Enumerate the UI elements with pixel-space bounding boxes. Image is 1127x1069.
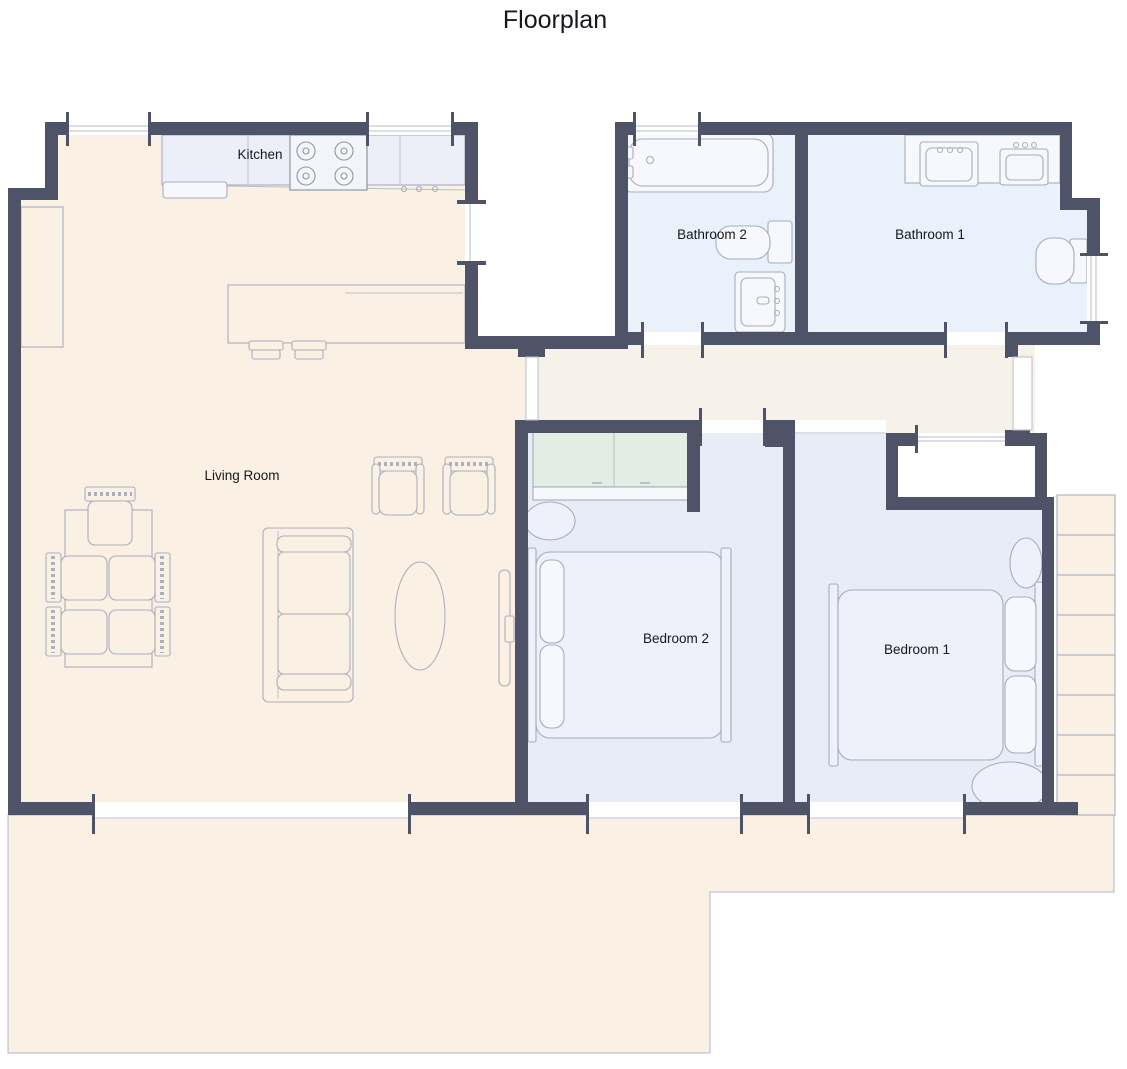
- wall-hall-door-jamb: [518, 349, 545, 357]
- bedroom2-label: Bedroom 2: [643, 631, 709, 646]
- dining-chair: [46, 607, 107, 656]
- bathroom1-label: Bathroom 1: [895, 227, 965, 242]
- pillow: [540, 645, 564, 728]
- armchair: [372, 457, 424, 515]
- door-leaf: [1013, 357, 1032, 430]
- wall-bed2-left: [515, 420, 528, 815]
- stairs: [1057, 495, 1115, 815]
- dining-chair: [109, 607, 170, 656]
- stair-step: [1057, 495, 1115, 535]
- hallway-floor: [526, 345, 1035, 433]
- sink: [1000, 143, 1048, 186]
- armchair: [443, 457, 495, 515]
- dishwasher: [163, 182, 227, 198]
- sink: [920, 142, 978, 186]
- toilet: [1036, 238, 1087, 284]
- kitchen-label: Kitchen: [237, 147, 282, 162]
- wall-bath1-upper-right: [1060, 122, 1072, 210]
- dining-chair: [85, 487, 135, 545]
- bedroom1-closet-notch: [898, 446, 1035, 497]
- wall-strip-jamb-bottom: [1005, 430, 1030, 443]
- wall-closet-right: [687, 420, 700, 512]
- floorplan-page: Floorplan Kitchen Bathroom 2 Bathroom 1 …: [0, 0, 1127, 1069]
- bathroom2-label: Bathroom 2: [677, 227, 747, 242]
- ottoman: [1010, 538, 1042, 588]
- patio-floor: [8, 815, 1114, 1053]
- wall-left: [8, 188, 21, 815]
- wall-bed1-right: [1042, 497, 1054, 815]
- stair-step: [1057, 655, 1115, 695]
- patio-terrace: [8, 815, 1114, 1053]
- sliding-wardrobe: [533, 431, 695, 500]
- kitchen-island: [228, 285, 465, 343]
- wall-bath-divider: [795, 122, 808, 345]
- living-room-label: Living Room: [204, 468, 279, 483]
- wall-bath2-left: [615, 122, 628, 345]
- wall-bed1-notch-bottom: [886, 497, 1047, 510]
- pillow: [540, 560, 564, 643]
- bar-stool: [249, 341, 283, 359]
- pillow: [1005, 597, 1036, 671]
- wall-bed-divider: [783, 447, 795, 802]
- stair-step: [1057, 695, 1115, 735]
- sofa: [263, 528, 353, 702]
- oval-coffee-table: [395, 562, 445, 670]
- door-leaf: [526, 357, 538, 420]
- bedroom1-label: Bedroom 1: [884, 642, 950, 657]
- stair-step: [1057, 575, 1115, 615]
- dining-chair: [109, 553, 170, 602]
- sink-vanity: [735, 272, 785, 332]
- stair-step: [1057, 615, 1115, 655]
- pillow: [1005, 676, 1036, 753]
- wall-hall-top: [465, 336, 628, 349]
- wall-bed-divider-corner: [765, 420, 795, 447]
- door-opening: [795, 420, 886, 434]
- stair-step: [1057, 735, 1115, 775]
- bar-stool: [292, 341, 326, 359]
- stair-step: [1057, 535, 1115, 575]
- floorplan-drawing: Floorplan Kitchen Bathroom 2 Bathroom 1 …: [0, 0, 1127, 1069]
- cabinet: [21, 207, 63, 347]
- bathtub: [622, 133, 773, 192]
- dining-chair: [46, 553, 107, 602]
- page-title: Floorplan: [503, 6, 607, 34]
- ottoman: [525, 502, 575, 540]
